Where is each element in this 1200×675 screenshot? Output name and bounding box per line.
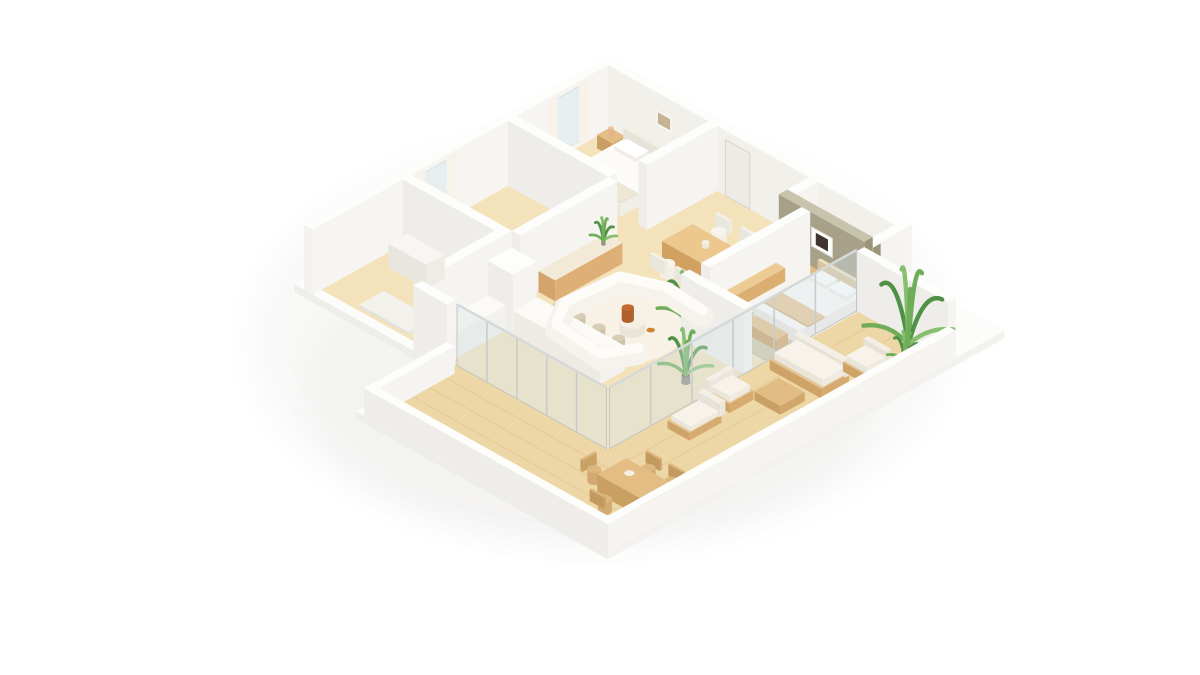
- amber-decor-bowl: [646, 328, 655, 333]
- dining-chair-back-face-se: [664, 260, 667, 275]
- terrace-dining-chair-back-face-sw: [581, 459, 583, 472]
- sideboard-plant-leaf: [603, 224, 604, 241]
- terrace-dining-chair-back-face-se: [660, 458, 662, 471]
- curtain-bedroom-a-left: [579, 77, 590, 144]
- bedroom-a-lamp-top: [608, 126, 613, 129]
- terrace-dining-chair-back-face-se: [604, 496, 606, 509]
- terrace-parapet-south-face-se: [608, 520, 616, 552]
- terracotta-side-table-top: [622, 304, 634, 311]
- floorplan-3d-render: [0, 0, 1200, 675]
- terrace-table-plate: [624, 470, 634, 476]
- wall-bedroom-a-east-face-sw: [639, 160, 648, 230]
- dining-chair-top: [711, 227, 726, 236]
- exterior-wall-northwest-face-sw: [304, 225, 313, 295]
- terrace-dining-chair-top: [587, 465, 601, 473]
- dining-table-vase-top: [702, 240, 709, 244]
- screenshot-root: [0, 0, 1200, 675]
- dining-chair-back-face-se: [729, 220, 732, 235]
